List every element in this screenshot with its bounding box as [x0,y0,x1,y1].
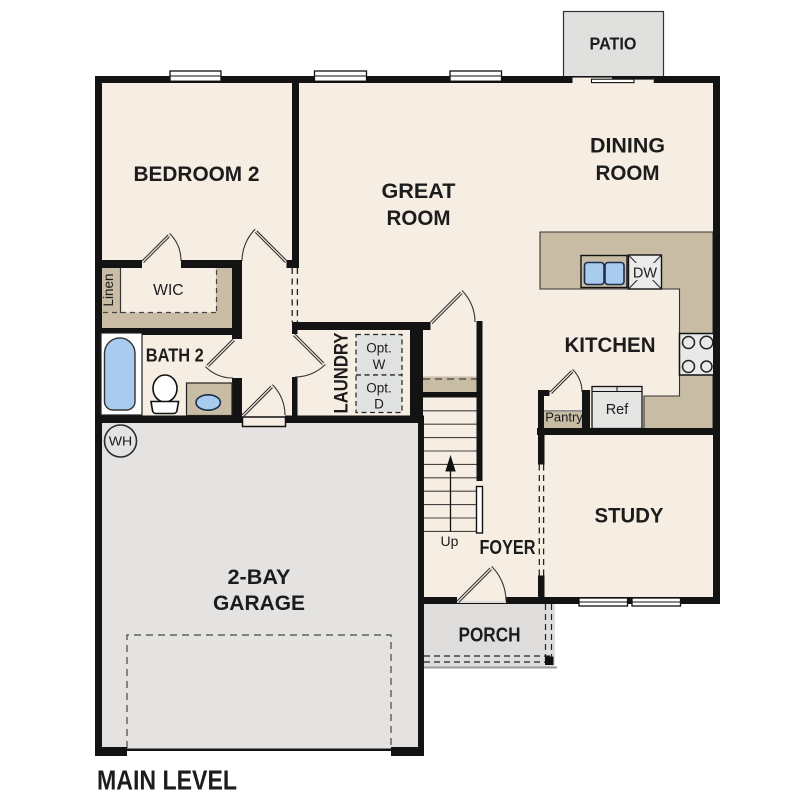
svg-text:BATH 2: BATH 2 [146,345,204,366]
svg-text:D: D [374,397,384,412]
svg-text:2-BAY: 2-BAY [228,565,291,589]
svg-text:BEDROOM 2: BEDROOM 2 [134,162,260,186]
svg-text:GREAT: GREAT [382,179,456,203]
svg-text:W: W [373,357,386,372]
svg-text:WIC: WIC [153,282,184,299]
svg-text:PATIO: PATIO [590,34,637,54]
svg-text:Pantry: Pantry [545,410,583,425]
svg-text:GARAGE: GARAGE [213,591,305,615]
svg-text:KITCHEN: KITCHEN [565,333,656,357]
svg-text:Up: Up [441,533,459,549]
svg-text:STUDY: STUDY [595,504,664,528]
svg-text:ROOM: ROOM [387,206,451,230]
svg-text:LAUNDRY: LAUNDRY [331,333,353,414]
svg-text:MAIN LEVEL: MAIN LEVEL [97,765,237,796]
svg-text:WH: WH [109,435,133,449]
svg-text:Ref: Ref [606,402,630,418]
svg-text:DW: DW [633,266,657,282]
svg-text:Linen: Linen [101,273,116,306]
svg-text:DINING: DINING [590,134,665,158]
svg-text:FOYER: FOYER [480,537,536,559]
svg-text:PORCH: PORCH [459,625,521,647]
svg-text:Opt.: Opt. [366,381,392,396]
svg-text:ROOM: ROOM [596,161,660,185]
svg-text:Opt.: Opt. [366,341,392,356]
